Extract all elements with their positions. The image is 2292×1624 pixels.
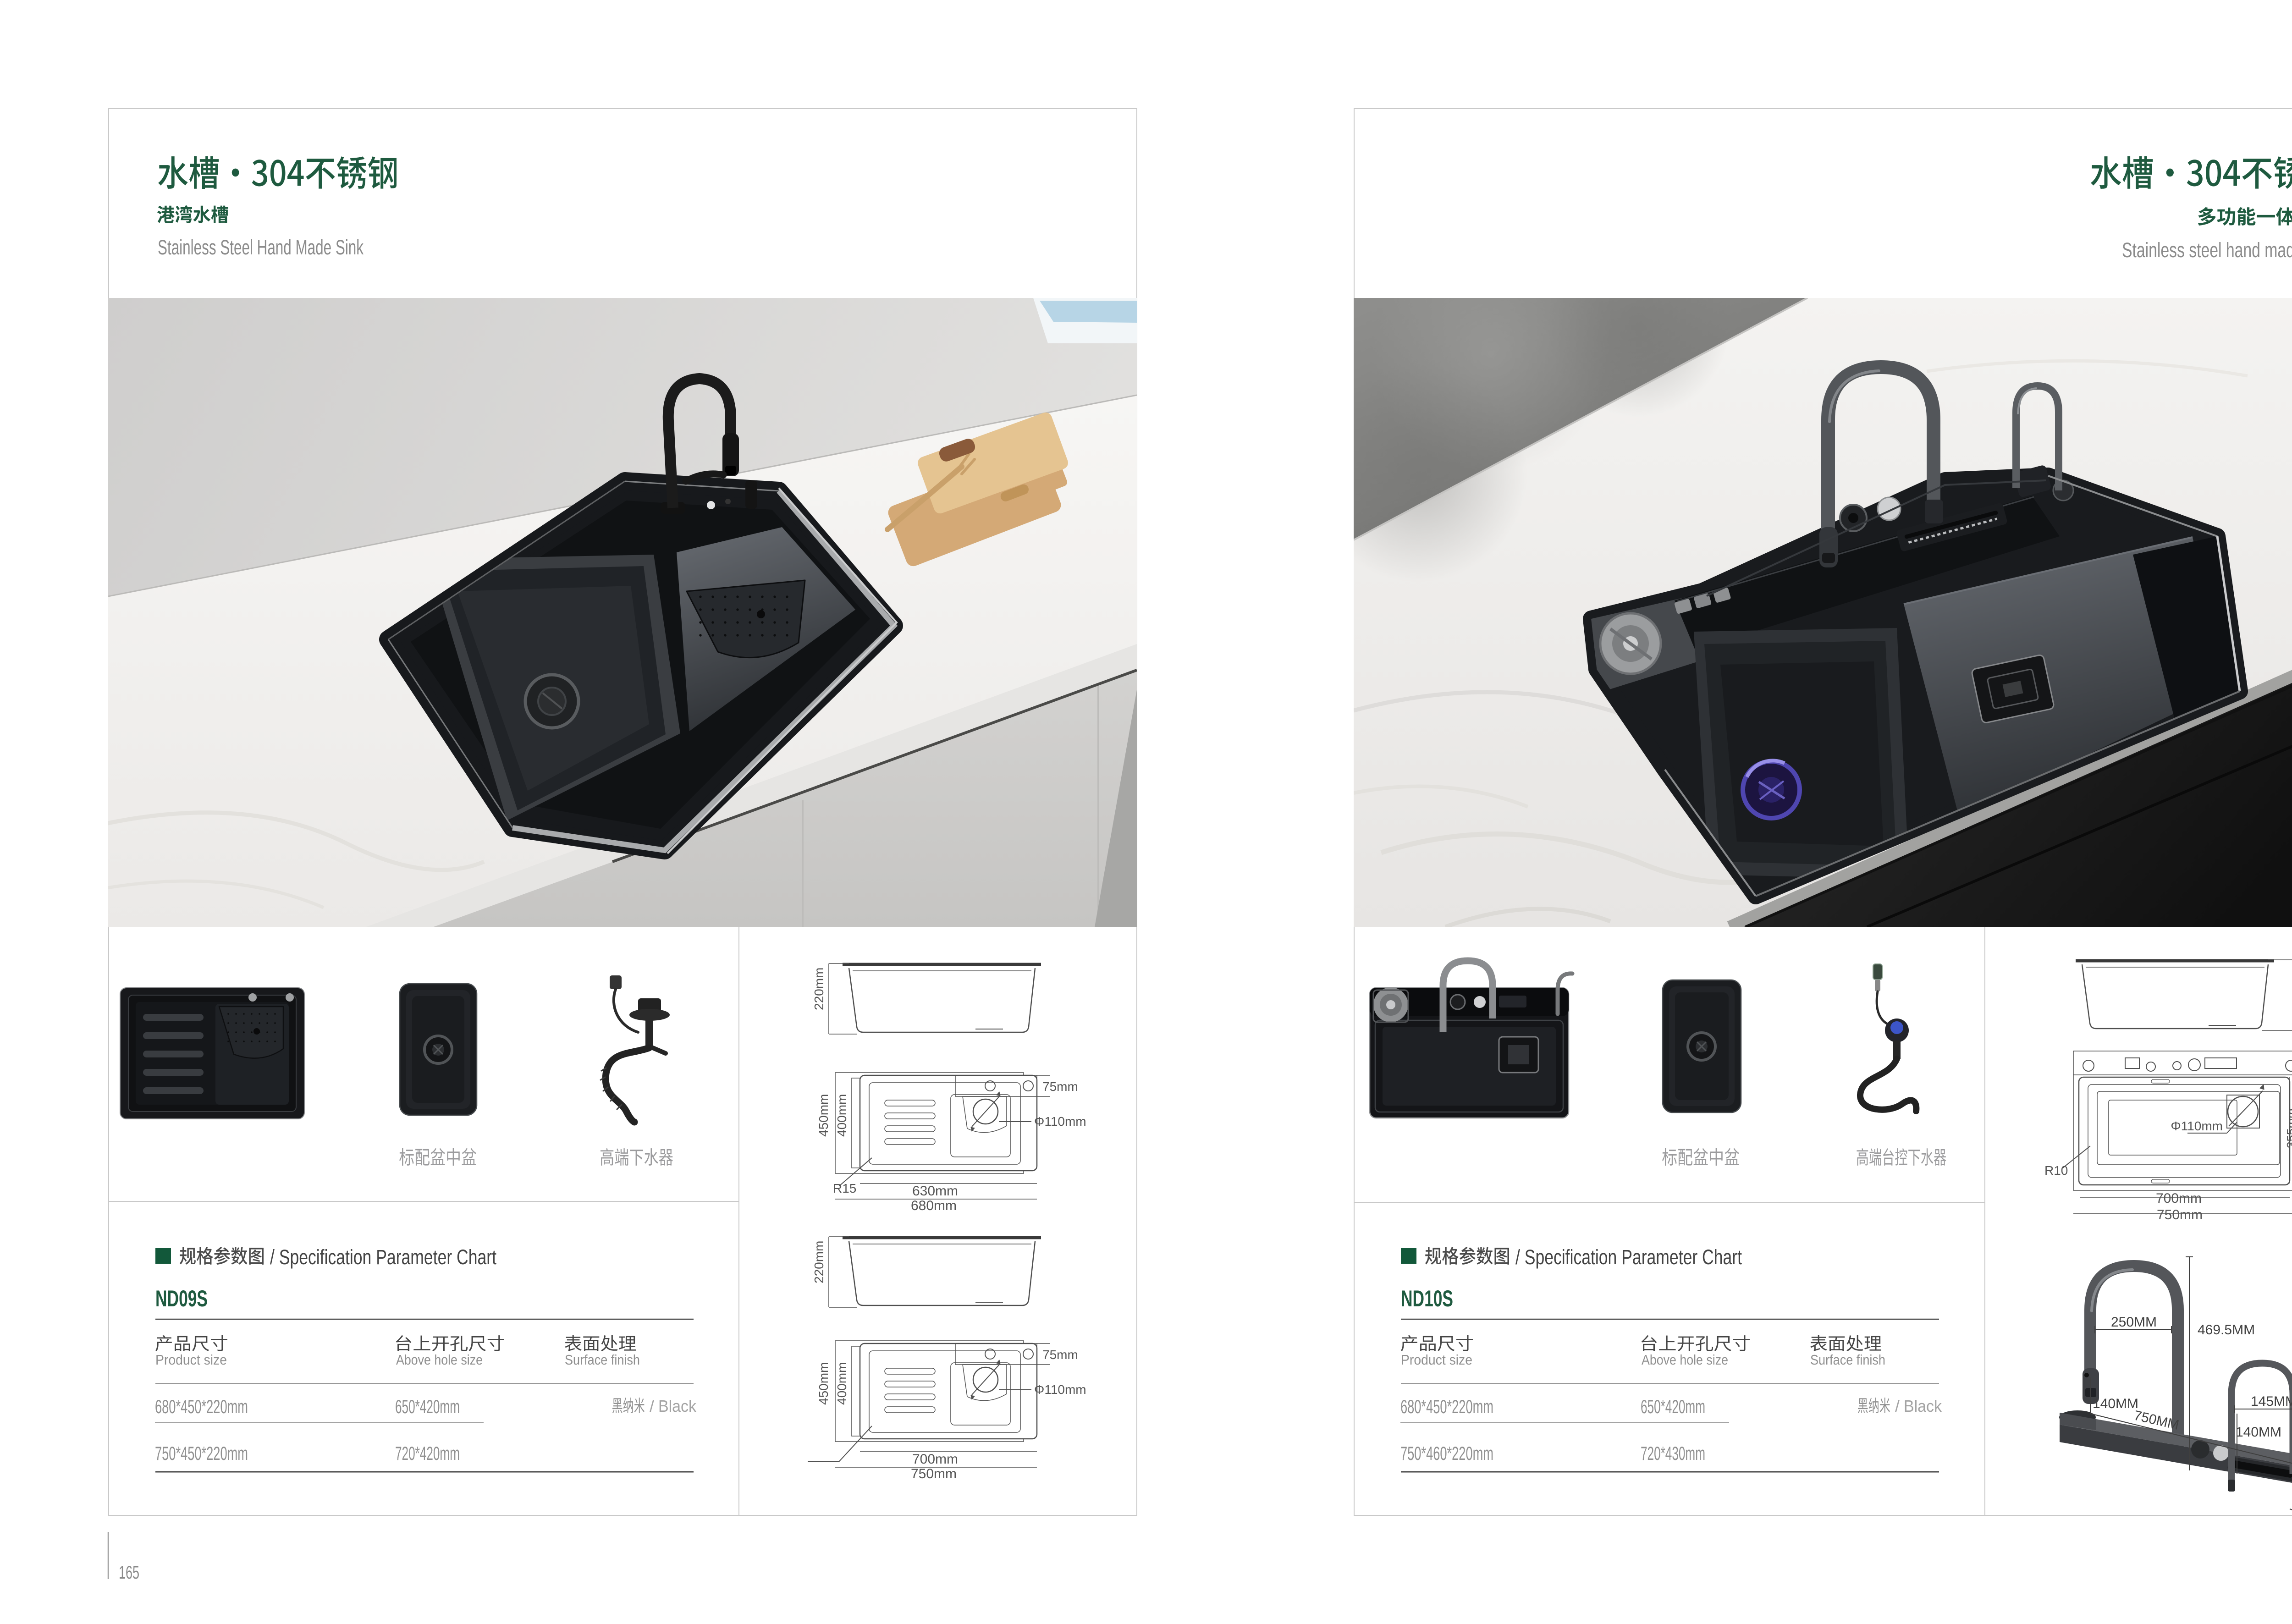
svg-text:Φ110mm: Φ110mm (1034, 1114, 1086, 1129)
svg-text:750*450*220mm: 750*450*220mm (155, 1442, 248, 1464)
svg-text:750mm: 750mm (2157, 1207, 2203, 1222)
svg-text:/: / (650, 1397, 654, 1415)
svg-text:700mm: 700mm (2156, 1191, 2202, 1206)
svg-text:140MM: 140MM (2236, 1425, 2281, 1440)
svg-text:ND10S: ND10S (1401, 1286, 1453, 1311)
svg-text:75mm: 75mm (1042, 1348, 1078, 1362)
svg-text:Above hole size: Above hole size (1642, 1352, 1728, 1368)
svg-text:250MM: 250MM (2111, 1315, 2157, 1330)
svg-text:680mm: 680mm (911, 1198, 957, 1213)
svg-text:355mm: 355mm (2284, 1108, 2292, 1148)
svg-text:720*430mm: 720*430mm (1641, 1442, 1705, 1464)
svg-text:630mm: 630mm (912, 1184, 958, 1199)
svg-text:Product size: Product size (155, 1352, 227, 1368)
svg-text:720*420mm: 720*420mm (395, 1442, 460, 1464)
svg-text:450mm: 450mm (816, 1094, 831, 1137)
svg-text:400mm: 400mm (835, 1362, 849, 1405)
svg-text:700mm: 700mm (912, 1452, 958, 1467)
svg-text:140MM: 140MM (2093, 1396, 2138, 1411)
svg-text:220mm: 220mm (812, 1241, 826, 1283)
svg-text:Black: Black (658, 1397, 697, 1415)
svg-text:Φ110mm: Φ110mm (2171, 1119, 2223, 1133)
svg-text:469.5MM: 469.5MM (2198, 1322, 2255, 1338)
svg-text:R15: R15 (833, 1181, 856, 1195)
svg-text:165: 165 (119, 1563, 139, 1583)
svg-text:/ Specification Parameter Char: / Specification Parameter Chart (1515, 1245, 1742, 1269)
svg-text:/: / (1895, 1397, 1900, 1415)
svg-text:ND09S: ND09S (155, 1286, 208, 1311)
svg-text:Product size: Product size (1401, 1352, 1472, 1368)
svg-text:400mm: 400mm (835, 1094, 849, 1137)
svg-text:Stainless Steel Hand Made Sink: Stainless Steel Hand Made Sink (158, 236, 364, 259)
svg-text:750mm: 750mm (911, 1466, 957, 1481)
svg-text:75mm: 75mm (1042, 1079, 1078, 1094)
svg-text:Φ110mm: Φ110mm (1034, 1382, 1086, 1397)
svg-text:Black: Black (1904, 1397, 1942, 1415)
svg-text:450mm: 450mm (816, 1362, 831, 1405)
svg-text:Surface finish: Surface finish (565, 1352, 640, 1368)
svg-text:R10: R10 (2044, 1163, 2068, 1178)
svg-text:Surface finish: Surface finish (1810, 1352, 1885, 1368)
svg-text:680*450*220mm: 680*450*220mm (1400, 1396, 1493, 1417)
svg-text:/ Specification Parameter Char: / Specification Parameter Chart (270, 1245, 496, 1269)
svg-text:220mm: 220mm (812, 968, 826, 1010)
svg-text:650*420mm: 650*420mm (395, 1396, 460, 1417)
svg-text:750*460*220mm: 750*460*220mm (1400, 1442, 1493, 1464)
svg-text:650*420mm: 650*420mm (1641, 1396, 1705, 1417)
svg-text:Stainless steel hand made sink: Stainless steel hand made sink (2122, 238, 2292, 262)
svg-text:680*450*220mm: 680*450*220mm (155, 1396, 248, 1417)
svg-text:Above hole size: Above hole size (396, 1352, 483, 1368)
svg-text:145MM: 145MM (2251, 1394, 2292, 1409)
